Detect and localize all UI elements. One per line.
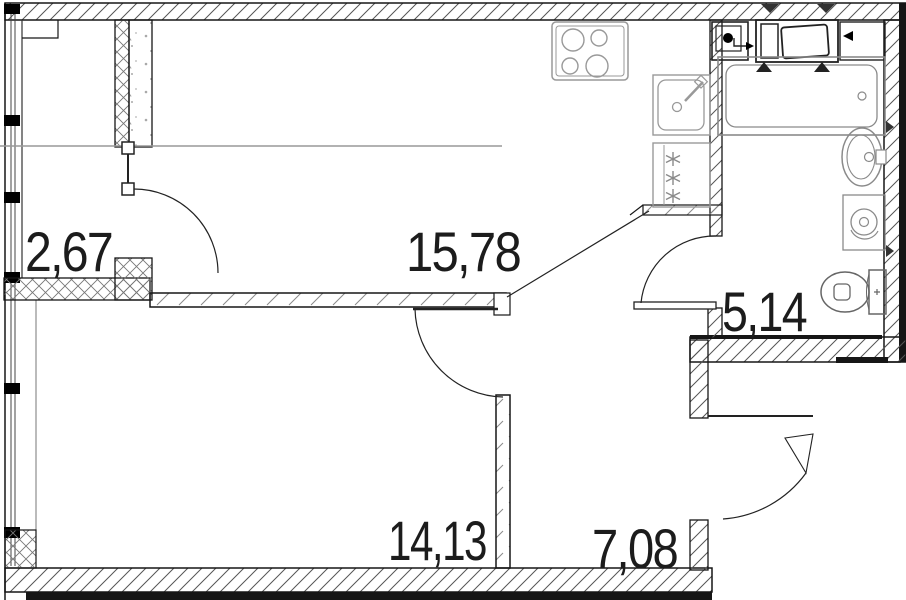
room-area-hallway: 7,08 — [592, 517, 677, 580]
wall-bottom-outer-band — [26, 592, 712, 600]
bathroom-door-arc — [641, 236, 716, 303]
fridge-icon — [653, 143, 710, 207]
washbasin-icon — [842, 128, 886, 186]
entrance-door-arc — [723, 473, 806, 519]
wall-wardrobe-right-a — [115, 20, 129, 147]
toilet-icon — [821, 270, 886, 314]
countertop-icon — [840, 22, 885, 60]
floor-plan-canvas: 2,67 15,78 5,14 14,13 7,08 — [0, 0, 906, 600]
facade-pier — [5, 530, 36, 568]
wall-partition-vertical — [496, 395, 510, 568]
bedroom-door — [413, 309, 503, 397]
wall-wardrobe-right-b — [129, 20, 152, 147]
washing-machine-icon — [756, 20, 838, 62]
bathroom-fixtures — [712, 4, 894, 314]
kitchen-sink-icon — [653, 75, 710, 135]
room-area-kitchen-living: 15,78 — [406, 220, 520, 283]
floor-plan: 2,67 15,78 5,14 14,13 7,08 — [0, 0, 906, 600]
toilet-tank-mark — [874, 289, 880, 295]
tub-mark-triangle — [814, 62, 830, 72]
interior-walls — [4, 20, 722, 570]
tub-mark-triangle — [756, 62, 772, 72]
bedroom-door-arc — [415, 309, 503, 397]
wall-bath-bottom-dash — [836, 357, 888, 363]
wall-right-outer-band — [899, 3, 906, 362]
wall-entry-stub-bottom — [690, 520, 708, 570]
wall-entry-stub-top — [690, 340, 708, 418]
room-area-bathroom: 5,14 — [722, 280, 807, 343]
window-mullions — [4, 4, 20, 538]
water-heater-icon — [843, 195, 885, 250]
open-passage-line — [507, 211, 649, 297]
entrance-door — [708, 416, 813, 519]
bathtub-icon — [718, 57, 885, 135]
wall-partition-horizontal — [150, 293, 506, 307]
room-area-bedroom: 14,13 — [388, 509, 486, 572]
wall-fridge-stub-cut — [630, 205, 643, 215]
corner-step — [22, 20, 58, 38]
bathroom-door — [634, 236, 716, 309]
stove-icon — [552, 22, 628, 80]
fridge-stars — [666, 152, 680, 203]
wardrobe-door — [122, 142, 218, 273]
wall-bath-door-stub — [708, 308, 722, 338]
left-facade-windows — [4, 3, 58, 600]
kitchen-fixtures — [552, 22, 710, 207]
room-area-wardrobe: 2,67 — [25, 220, 112, 283]
wall-wardrobe-stub — [115, 258, 152, 300]
